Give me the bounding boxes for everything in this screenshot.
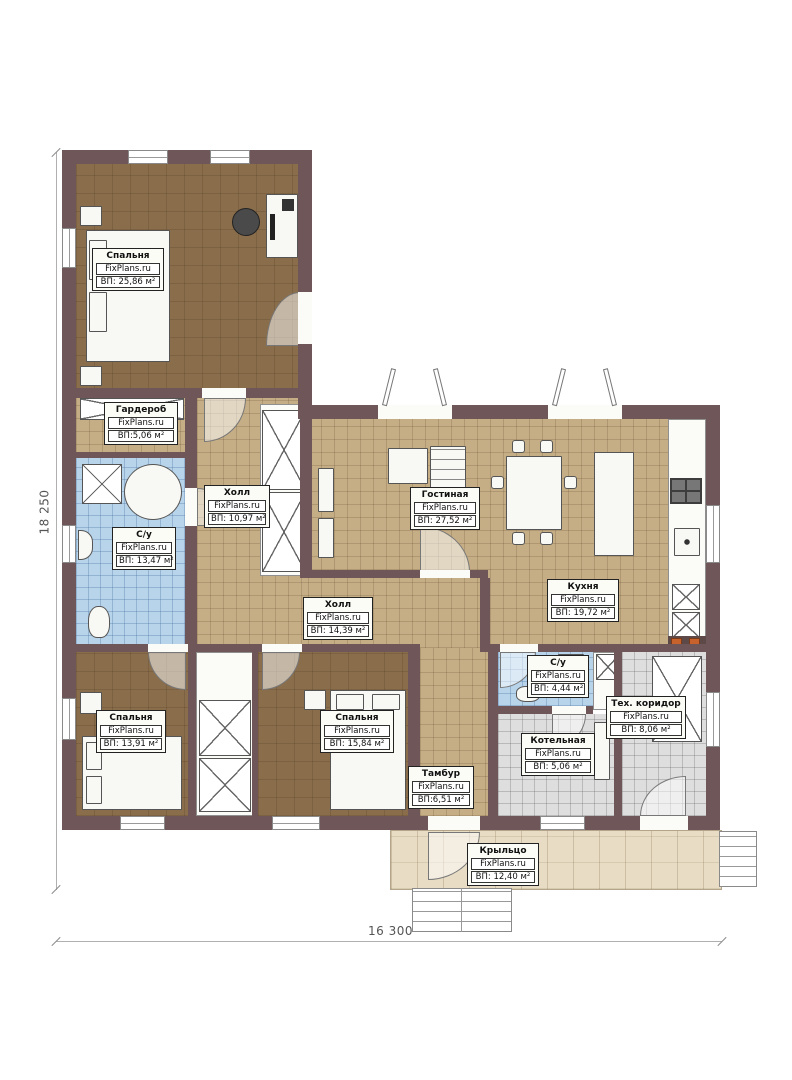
stove-icon <box>670 478 702 504</box>
room-area: ВП: 27,52 м² <box>414 515 476 527</box>
brand-watermark: FixPlans.ru <box>525 748 591 760</box>
room-label-living-room: Гостиная FixPlans.ru ВП: 27,52 м² <box>410 487 480 530</box>
burner-icon <box>687 492 700 502</box>
wall <box>252 652 258 816</box>
room-label-vestibule: Тамбур FixPlans.ru ВП:6,51 м² <box>408 766 474 809</box>
brand-watermark: FixPlans.ru <box>96 263 160 275</box>
chair <box>540 532 553 545</box>
door-opening <box>500 644 538 652</box>
brand-watermark: FixPlans.ru <box>471 858 535 870</box>
wall <box>312 405 720 419</box>
room-area: ВП: 25,86 м² <box>96 276 160 288</box>
room-name: Кухня <box>551 582 615 593</box>
shelf <box>318 468 334 512</box>
monitor-icon <box>270 214 275 240</box>
brand-watermark: FixPlans.ru <box>208 500 266 512</box>
room-label-boiler-room: Котельная FixPlans.ru ВП: 5,06 м² <box>521 733 595 776</box>
cabinet-icon <box>672 612 700 638</box>
wall <box>300 405 312 578</box>
wall <box>298 150 312 419</box>
wardrobe-cabinet-icon <box>199 700 251 756</box>
room-name: Тамбур <box>412 769 470 780</box>
room-label-bedroom-2: Спальня FixPlans.ru ВП: 13,91 м² <box>96 710 166 753</box>
room-label-bedroom-1: Спальня FixPlans.ru ВП: 25,86 м² <box>92 248 164 291</box>
chair <box>491 476 504 489</box>
dimension-width-label: 16 300 <box>368 924 413 938</box>
wall <box>188 652 196 816</box>
door-opening <box>552 706 586 714</box>
chair <box>512 440 525 453</box>
room-label-tech-corridor: Тех. коридор FixPlans.ru ВП: 8,06 м² <box>606 696 686 739</box>
brand-watermark: FixPlans.ru <box>414 502 476 514</box>
room-area: ВП:5,06 м² <box>108 430 174 442</box>
room-area: ВП: 10,97 м² <box>208 513 266 525</box>
window <box>706 505 720 563</box>
wardrobe-cabinet-icon <box>199 758 251 812</box>
door-leaf <box>552 368 566 406</box>
coffee-table <box>388 448 428 484</box>
french-door-opening <box>378 405 452 419</box>
window <box>210 150 250 164</box>
window <box>540 816 585 830</box>
dimension-line-vertical <box>56 152 57 890</box>
burner-icon <box>672 492 685 502</box>
room-name: Крыльцо <box>471 846 535 857</box>
brand-watermark: FixPlans.ru <box>531 670 585 682</box>
steps-divider <box>461 888 462 932</box>
room-name: Тех. коридор <box>610 699 682 710</box>
door-opening <box>428 816 480 830</box>
office-chair <box>232 208 260 236</box>
room-name: Спальня <box>96 251 160 262</box>
wall <box>308 570 422 578</box>
porch-steps <box>412 888 512 932</box>
room-area: ВП: 15,84 м² <box>324 738 390 750</box>
wall <box>470 570 488 578</box>
kitchen-sink-icon <box>674 528 700 556</box>
brand-watermark: FixPlans.ru <box>100 725 162 737</box>
door-opening <box>202 388 246 398</box>
nightstand <box>80 206 102 226</box>
room-area: ВП: 13,47 м² <box>116 555 172 567</box>
chair <box>512 532 525 545</box>
burner-icon <box>672 480 685 490</box>
shelf <box>318 518 334 558</box>
wall <box>62 150 312 164</box>
wall <box>62 644 420 652</box>
door-opening <box>420 570 470 578</box>
room-label-bedroom-3: Спальня FixPlans.ru ВП: 15,84 м² <box>320 710 394 753</box>
room-area: ВП: 4,44 м² <box>531 683 585 695</box>
door-opening <box>262 644 302 652</box>
window <box>272 816 320 830</box>
dining-table <box>506 456 562 530</box>
burner-icon <box>687 480 700 490</box>
door-opening <box>640 816 688 830</box>
room-label-kitchen: Кухня FixPlans.ru ВП: 19,72 м² <box>547 579 619 622</box>
window <box>62 228 76 268</box>
floor-plan: 18 250 16 300 <box>0 0 792 1080</box>
brand-watermark: FixPlans.ru <box>108 417 174 429</box>
room-label-bathroom-1: С/у FixPlans.ru ВП: 13,47 м² <box>112 527 176 570</box>
room-label-porch: Крыльцо FixPlans.ru ВП: 12,40 м² <box>467 843 539 886</box>
wall <box>480 578 490 652</box>
room-name: Спальня <box>100 713 162 724</box>
door-opening <box>298 292 312 344</box>
wall <box>706 405 720 830</box>
door-opening <box>185 488 197 526</box>
window <box>62 698 76 740</box>
brand-watermark: FixPlans.ru <box>551 594 615 606</box>
room-name: С/у <box>116 530 172 541</box>
room-area: ВП: 5,06 м² <box>525 761 591 773</box>
brand-watermark: FixPlans.ru <box>610 711 682 723</box>
chair <box>540 440 553 453</box>
pillow <box>89 292 107 332</box>
pillow <box>372 694 400 710</box>
room-area: ВП:6,51 м² <box>412 794 470 806</box>
brand-watermark: FixPlans.ru <box>307 612 369 624</box>
window <box>120 816 165 830</box>
side-steps <box>719 831 757 887</box>
cabinet-icon <box>672 584 700 610</box>
room-label-wardrobe: Гардероб FixPlans.ru ВП:5,06 м² <box>104 402 178 445</box>
toilet <box>88 606 110 638</box>
nightstand <box>80 366 102 386</box>
room-name: Гардероб <box>108 405 174 416</box>
dimension-line-horizontal <box>56 941 722 942</box>
nightstand <box>304 690 326 710</box>
brand-watermark: FixPlans.ru <box>324 725 390 737</box>
door-leaf <box>433 368 447 406</box>
room-area: ВП: 8,06 м² <box>610 724 682 736</box>
brand-watermark: FixPlans.ru <box>412 781 470 793</box>
room-name: Котельная <box>525 736 591 747</box>
pillow <box>336 694 364 710</box>
room-name: Холл <box>307 600 369 611</box>
window <box>62 525 76 563</box>
door-leaf <box>382 368 396 406</box>
window <box>706 692 720 747</box>
pillow <box>86 776 102 804</box>
room-label-bathroom-2: С/у FixPlans.ru ВП: 4,44 м² <box>527 655 589 698</box>
room-name: С/у <box>531 658 585 669</box>
brand-watermark: FixPlans.ru <box>116 542 172 554</box>
room-name: Холл <box>208 488 266 499</box>
door-leaf <box>603 368 617 406</box>
printer-icon <box>282 199 294 211</box>
room-label-hall-1: Холл FixPlans.ru ВП: 10,97 м² <box>204 485 270 528</box>
room-name: Спальня <box>324 713 390 724</box>
window <box>128 150 168 164</box>
wall <box>76 452 185 458</box>
room-area: ВП: 14,39 м² <box>307 625 369 637</box>
room-area: ВП: 12,40 м² <box>471 871 535 883</box>
room-name: Гостиная <box>414 490 476 501</box>
kitchen-island <box>594 452 634 556</box>
shower <box>82 464 122 504</box>
bathtub <box>124 464 182 520</box>
wall <box>488 652 498 816</box>
french-door-opening <box>548 405 622 419</box>
chair <box>564 476 577 489</box>
door-opening <box>148 644 188 652</box>
room-area: ВП: 19,72 м² <box>551 607 615 619</box>
room-area: ВП: 13,91 м² <box>100 738 162 750</box>
dimension-height-label: 18 250 <box>38 490 52 535</box>
room-label-hall-2: Холл FixPlans.ru ВП: 14,39 м² <box>303 597 373 640</box>
